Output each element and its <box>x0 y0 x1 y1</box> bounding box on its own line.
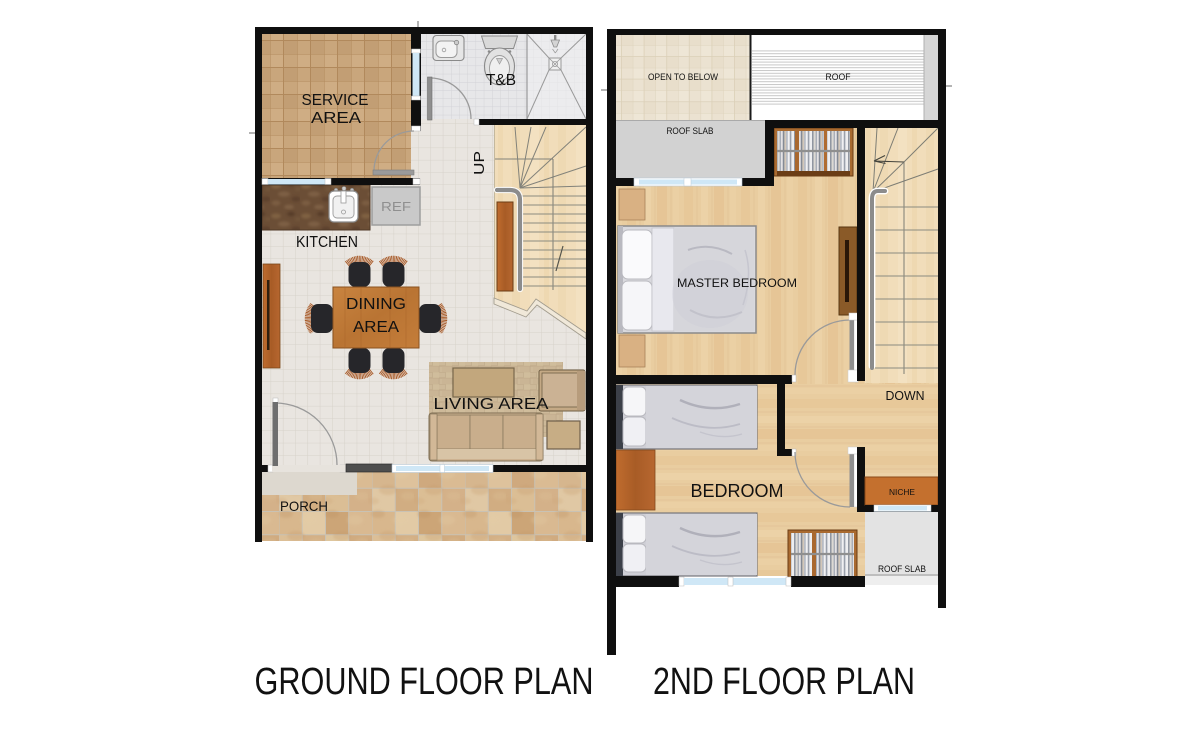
svg-text:ROOF: ROOF <box>826 72 851 83</box>
svg-text:BEDROOM: BEDROOM <box>691 481 784 501</box>
svg-text:2ND FLOOR PLAN: 2ND FLOOR PLAN <box>653 661 915 703</box>
svg-text:ROOF SLAB: ROOF SLAB <box>878 564 926 575</box>
svg-text:DINING: DINING <box>346 296 406 313</box>
svg-text:NICHE: NICHE <box>889 487 915 497</box>
svg-text:PORCH: PORCH <box>280 498 328 514</box>
svg-text:AREA: AREA <box>311 110 361 127</box>
svg-text:LIVING AREA: LIVING AREA <box>434 396 549 413</box>
svg-text:UP: UP <box>471 151 488 175</box>
svg-text:GROUND FLOOR PLAN: GROUND FLOOR PLAN <box>255 661 594 703</box>
svg-text:KITCHEN: KITCHEN <box>296 234 358 251</box>
svg-text:ROOF SLAB: ROOF SLAB <box>667 126 714 137</box>
svg-text:MASTER BEDROOM: MASTER BEDROOM <box>677 278 797 290</box>
svg-text:OPEN TO BELOW: OPEN TO BELOW <box>648 72 718 83</box>
svg-text:AREA: AREA <box>353 319 399 336</box>
svg-text:SERVICE: SERVICE <box>302 92 369 109</box>
svg-text:DOWN: DOWN <box>886 388 925 403</box>
svg-text:T&B: T&B <box>486 72 516 89</box>
svg-text:REF: REF <box>381 200 411 214</box>
